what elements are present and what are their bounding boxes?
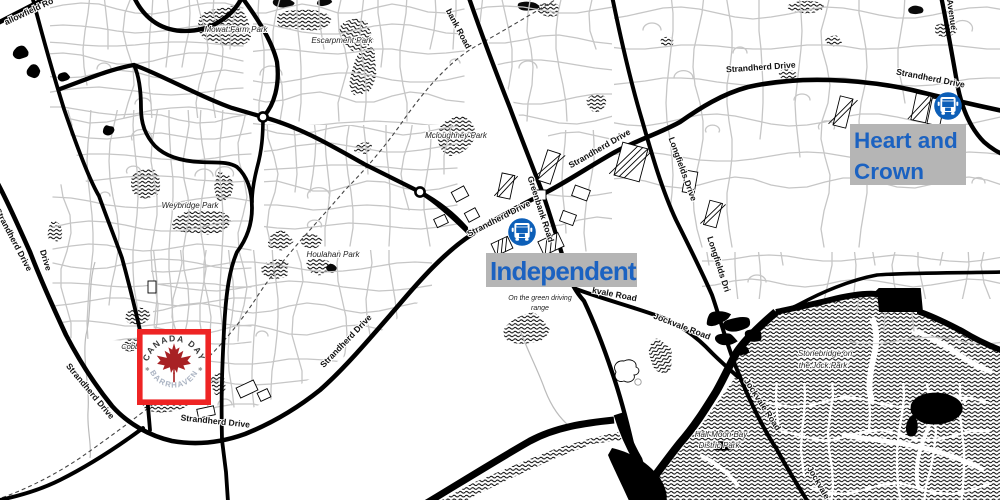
svg-text:Half Moon Bay: Half Moon Bay [695,430,748,439]
svg-text:On the green driving: On the green driving [508,295,572,302]
svg-text:Heart and: Heart and [854,128,958,153]
svg-text:✱: ✱ [198,366,203,373]
svg-text:Escarpment Park: Escarpment Park [311,36,373,45]
svg-text:Independent: Independent [490,256,637,286]
svg-text:the Jock Park: the Jock Park [799,361,848,370]
svg-text:Weybridge Park: Weybridge Park [162,201,220,210]
svg-text:Mcloughney Park: Mcloughney Park [425,131,488,140]
svg-text:Distric Park: Distric Park [699,441,741,450]
svg-text:Houlahan Park: Houlahan Park [307,250,361,259]
svg-text:range: range [531,305,549,312]
svg-text:Stonebridge on: Stonebridge on [798,349,853,358]
svg-text:Mowat Farm Park: Mowat Farm Park [204,25,268,34]
svg-text:Crown: Crown [854,159,924,184]
svg-text:✱: ✱ [145,366,150,373]
